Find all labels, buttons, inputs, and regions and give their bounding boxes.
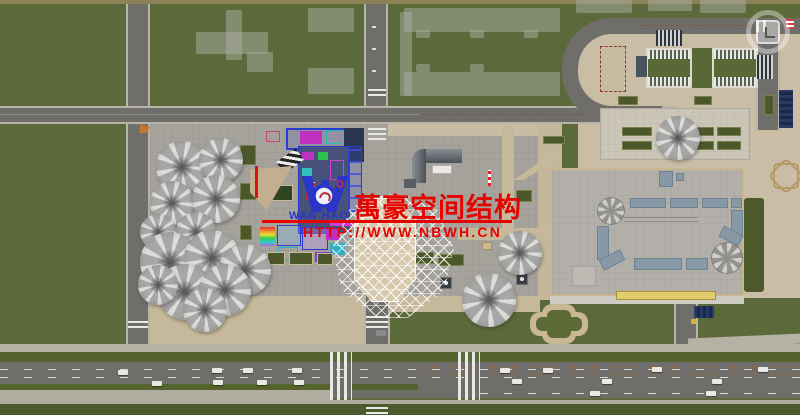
crosswalk bbox=[756, 20, 768, 32]
canopy-wall-left bbox=[412, 149, 426, 183]
roof-joint-line bbox=[624, 221, 698, 222]
canopy-tree bbox=[462, 273, 516, 327]
plaza-top-walk bbox=[388, 124, 562, 136]
planter bbox=[543, 136, 565, 144]
cad-detail bbox=[330, 160, 344, 180]
site-plan-canvas: WAN HAO 萬豪空间结构 HTTP://WWW.NBWH.CN bbox=[0, 0, 800, 415]
hedge-strip bbox=[744, 198, 764, 292]
building-footprint bbox=[226, 10, 242, 60]
planter bbox=[240, 225, 252, 240]
quatrefoil-green bbox=[547, 310, 571, 338]
canopy-tree bbox=[656, 116, 700, 160]
car bbox=[152, 381, 162, 386]
car bbox=[758, 367, 768, 372]
cad-outline-pink bbox=[266, 131, 280, 142]
canopy-tree bbox=[183, 288, 227, 332]
boulevard-verge-strip bbox=[352, 352, 458, 362]
building-footprint bbox=[247, 52, 273, 72]
roof-dome bbox=[711, 242, 743, 274]
cad-detail bbox=[318, 152, 328, 160]
car bbox=[706, 391, 716, 396]
skylight bbox=[731, 198, 742, 208]
roof-edge-yellow bbox=[616, 291, 716, 300]
building-footprint bbox=[416, 30, 430, 38]
red-barrier-line bbox=[255, 166, 258, 198]
car bbox=[243, 368, 253, 373]
building-footprint bbox=[400, 12, 412, 96]
car bbox=[292, 368, 302, 373]
road-main-horizontal bbox=[0, 106, 676, 124]
planter bbox=[694, 96, 712, 105]
lane-dashes bbox=[0, 377, 800, 378]
boulevard-verge-strip bbox=[480, 352, 800, 362]
skylight bbox=[686, 258, 708, 270]
building-footprint bbox=[470, 30, 484, 38]
road-east-vertical bbox=[756, 34, 780, 130]
car bbox=[294, 380, 304, 385]
cad-ladder-blue bbox=[348, 146, 362, 212]
car bbox=[712, 379, 722, 384]
tower-base-mark bbox=[376, 330, 386, 336]
building-footprint bbox=[308, 8, 354, 32]
crosswalk bbox=[128, 318, 148, 328]
car bbox=[212, 368, 222, 373]
road-ne-brown-line bbox=[640, 25, 800, 26]
car bbox=[590, 391, 600, 396]
canopy-tree bbox=[138, 265, 178, 305]
roof-planter bbox=[622, 141, 652, 150]
road-center-line bbox=[0, 114, 420, 115]
building-footprint bbox=[308, 68, 354, 94]
building-footprint bbox=[416, 64, 430, 72]
roof-hatch bbox=[572, 266, 596, 286]
lane-mark bbox=[372, 48, 376, 50]
plaza-path-vertical bbox=[502, 126, 514, 230]
skylight bbox=[670, 198, 698, 208]
skylight bbox=[634, 258, 682, 270]
boulevard-verge-strip bbox=[0, 352, 330, 362]
planter bbox=[764, 95, 774, 115]
yellow-dot-marker bbox=[691, 319, 696, 324]
crosswalk bbox=[330, 352, 352, 400]
parked-truck-blue bbox=[694, 306, 714, 318]
building-footprint bbox=[404, 72, 560, 96]
lane-dashes bbox=[480, 393, 800, 394]
lane-dashes-brown bbox=[430, 366, 800, 367]
parking-lot bbox=[600, 46, 626, 92]
pavilion-green-roof bbox=[646, 48, 692, 88]
cad-outline-blue bbox=[302, 227, 328, 250]
building-footprint bbox=[524, 30, 538, 38]
building-footprint bbox=[470, 64, 484, 72]
kiosk-dark bbox=[404, 179, 416, 188]
pavilion-green-roof bbox=[712, 48, 758, 88]
roof-dome bbox=[597, 197, 625, 225]
crosswalk bbox=[366, 404, 388, 414]
roof-joint-line bbox=[624, 217, 698, 218]
kiosk-white bbox=[432, 165, 452, 174]
parked-truck-blue bbox=[779, 90, 793, 128]
skylight bbox=[659, 171, 673, 187]
roof-planter bbox=[717, 127, 741, 136]
louver-roof bbox=[757, 55, 773, 79]
car bbox=[257, 380, 267, 385]
skylight bbox=[630, 198, 666, 208]
star-planter bbox=[768, 154, 800, 200]
planter bbox=[516, 190, 532, 202]
louver-roof bbox=[656, 30, 682, 46]
car bbox=[500, 368, 510, 373]
roof-planter bbox=[622, 127, 652, 136]
building-footprint bbox=[700, 0, 746, 13]
car bbox=[652, 367, 662, 372]
service-door bbox=[636, 56, 647, 77]
red-marker-posts bbox=[488, 170, 491, 186]
skylight bbox=[702, 198, 728, 208]
boulevard-verge-south bbox=[0, 404, 800, 415]
cad-block-magenta bbox=[300, 131, 322, 144]
building-footprint bbox=[576, 0, 632, 13]
boulevard-lanes-south bbox=[330, 390, 800, 398]
car bbox=[213, 380, 223, 385]
building-footprint bbox=[648, 0, 692, 11]
rainbow-material-stack bbox=[260, 227, 275, 246]
car bbox=[602, 379, 612, 384]
building-footprint bbox=[404, 8, 560, 32]
crosswalk bbox=[368, 128, 386, 140]
curb-marker-red-white bbox=[786, 19, 794, 29]
truss-tower-core bbox=[354, 198, 416, 302]
bench bbox=[482, 242, 492, 250]
courtyard-green bbox=[692, 48, 712, 88]
red-marker-posts bbox=[312, 182, 315, 198]
car bbox=[118, 370, 128, 375]
planter bbox=[289, 252, 313, 265]
cad-outline-cyan bbox=[326, 130, 342, 144]
boulevard-sidewalk-north bbox=[0, 344, 800, 352]
car bbox=[512, 379, 522, 384]
planter bbox=[618, 96, 638, 105]
lane-dashes-brown bbox=[430, 373, 800, 374]
lane-mark bbox=[372, 26, 376, 28]
canopy-tree bbox=[498, 231, 542, 275]
crosswalk bbox=[368, 86, 386, 96]
cad-detail bbox=[302, 168, 312, 176]
planter bbox=[317, 253, 333, 265]
crosswalk bbox=[458, 352, 480, 400]
cad-outline-blue bbox=[277, 225, 301, 246]
skylight bbox=[676, 173, 684, 181]
roof-planter bbox=[717, 141, 741, 150]
lane-mark bbox=[372, 70, 376, 72]
car bbox=[543, 368, 553, 373]
